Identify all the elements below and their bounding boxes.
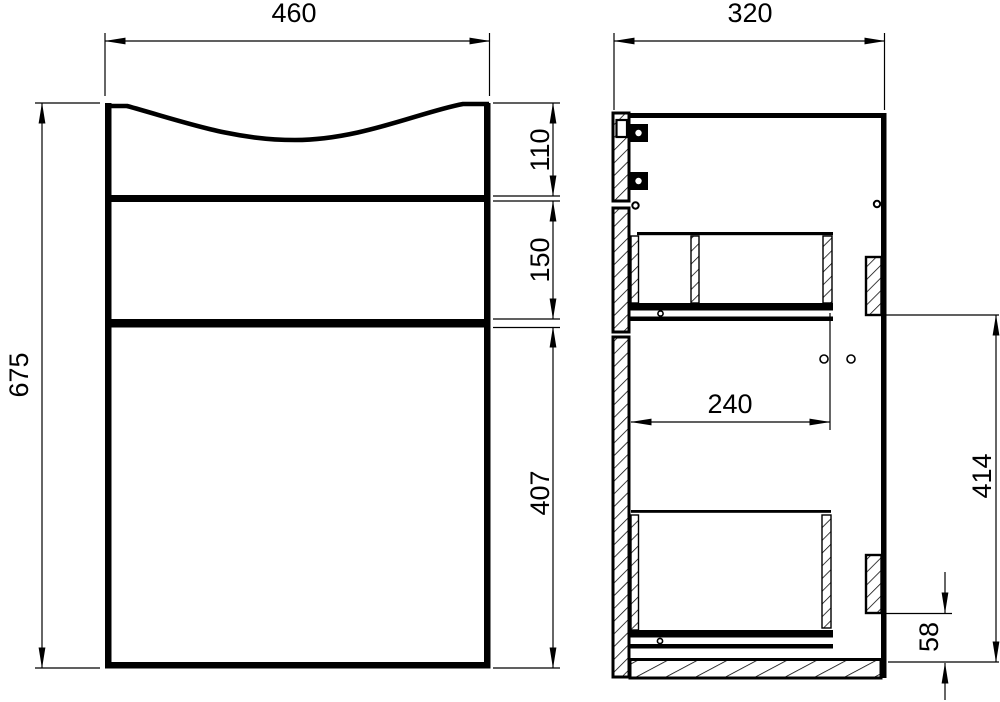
front-divider-band-upper	[105, 195, 490, 202]
back-bracket-lower	[866, 555, 882, 613]
side-top-panel	[613, 113, 886, 118]
slide-roller	[657, 638, 662, 643]
panel-fitting-lower	[629, 172, 648, 190]
dim-label-bottom-offset: 58	[914, 622, 944, 652]
drawer-mid-wall	[691, 236, 699, 303]
front-divider-band-lower	[105, 319, 490, 328]
front-bottom-edge	[105, 662, 491, 669]
back-bracket-upper	[866, 257, 882, 315]
dim-label-middle-section: 150	[525, 237, 555, 282]
screw-hole	[632, 202, 638, 208]
drawer-front-wall	[631, 515, 639, 630]
background	[0, 0, 1000, 702]
technical-drawing: 460 675 110 150 407	[0, 0, 1000, 702]
dim-label-front-width: 460	[271, 0, 316, 28]
drawer-slide-rail	[630, 317, 833, 322]
dim-label-drawer-depth: 240	[707, 389, 752, 419]
drawer-slide-rail	[630, 644, 833, 649]
front-left-edge	[105, 103, 112, 668]
panel-fitting-upper	[629, 124, 648, 142]
drawer-top-edge	[631, 510, 831, 513]
drawer-front-wall	[631, 236, 639, 303]
side-bottom-panel	[630, 660, 881, 679]
drawer-back-wall	[823, 236, 832, 303]
dim-label-front-height: 675	[4, 352, 34, 397]
front-right-edge	[484, 103, 491, 668]
screw-hole	[874, 201, 880, 207]
dim-label-bottom-section: 407	[525, 470, 555, 515]
drawing-page: 460 675 110 150 407	[0, 0, 1000, 702]
drawer-top-edge	[637, 232, 833, 235]
front-panel-top-rail	[617, 120, 628, 137]
dim-label-side-depth: 320	[727, 0, 772, 28]
drawer-bottom	[630, 630, 833, 638]
dim-label-back-span: 414	[967, 453, 997, 498]
back-hole	[847, 355, 855, 363]
front-panel-segment-bottom	[613, 337, 629, 677]
drawer-bottom	[630, 303, 833, 311]
slide-roller	[658, 311, 663, 316]
back-hole	[820, 355, 828, 363]
drawer-back-wall	[822, 515, 831, 628]
dim-label-top-section: 110	[525, 128, 555, 171]
front-panel-segment-middle	[613, 208, 629, 332]
